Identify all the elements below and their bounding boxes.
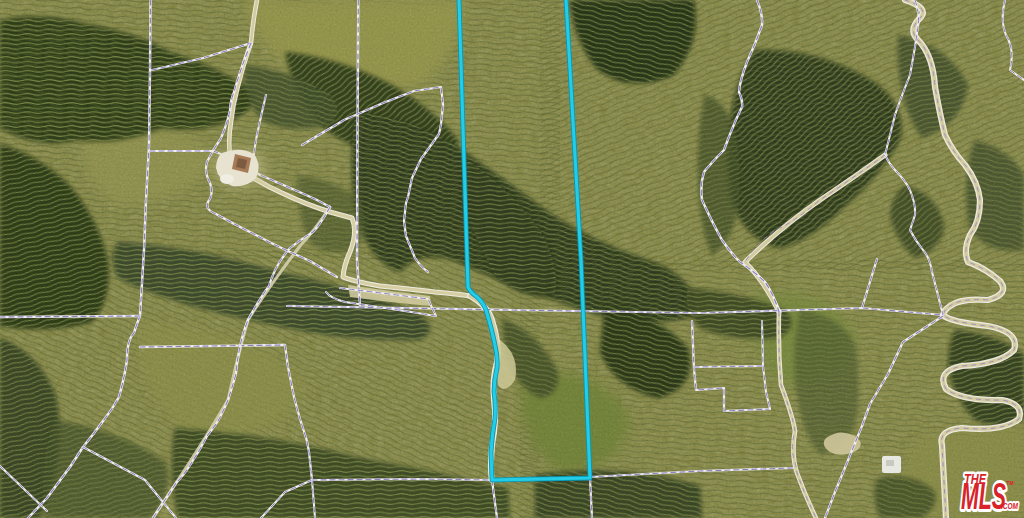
svg-text:MLS: MLS <box>961 476 1006 517</box>
svg-text:.COM: .COM <box>1001 501 1018 511</box>
svg-text:TM: TM <box>1007 480 1014 486</box>
